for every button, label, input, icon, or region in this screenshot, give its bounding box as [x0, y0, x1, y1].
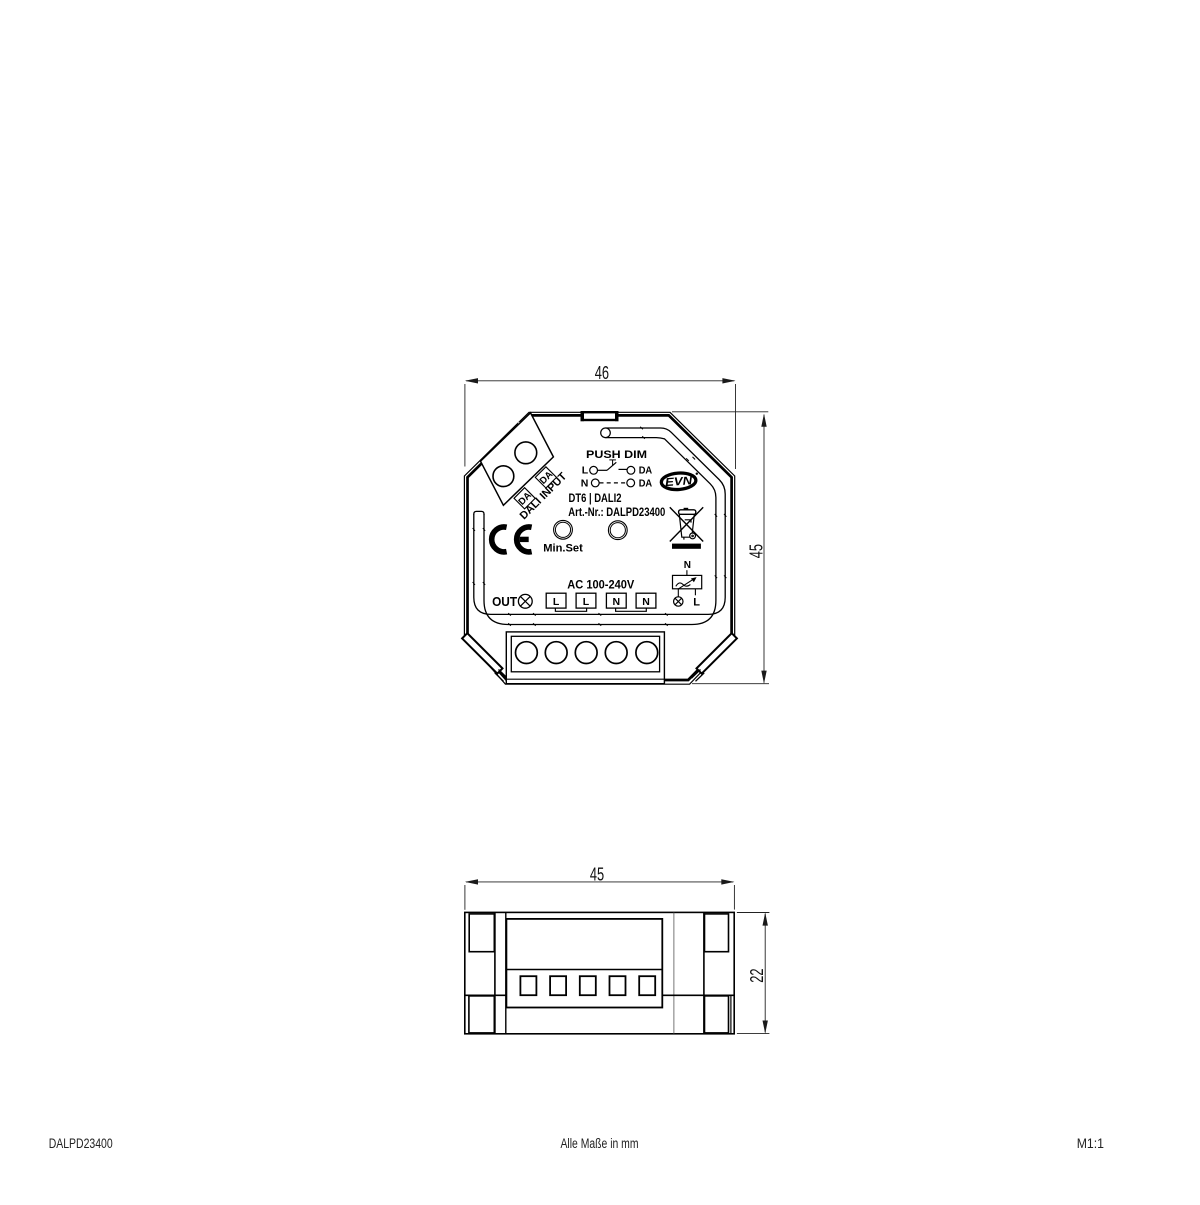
svg-text:45: 45 [746, 544, 766, 558]
svg-text:46: 46 [595, 363, 609, 383]
svg-text:OUT: OUT [492, 594, 517, 609]
svg-text:Min.Set: Min.Set [543, 542, 583, 554]
svg-text:22: 22 [747, 968, 767, 982]
svg-text:M1:1: M1:1 [1077, 1136, 1104, 1151]
svg-text:L: L [693, 596, 700, 608]
svg-text:L: L [553, 596, 560, 608]
svg-text:EVN: EVN [665, 475, 694, 489]
svg-text:L: L [583, 596, 590, 608]
svg-text:N: N [581, 478, 589, 490]
svg-text:DT6 | DALI2: DT6 | DALI2 [569, 491, 622, 505]
svg-text:AC 100-240V: AC 100-240V [567, 579, 634, 591]
svg-text:N: N [684, 560, 691, 571]
svg-text:L: L [582, 465, 589, 477]
svg-text:45: 45 [590, 864, 604, 884]
svg-text:PUSH DIM: PUSH DIM [586, 449, 647, 461]
svg-text:Alle Maße in mm: Alle Maße in mm [561, 1136, 639, 1151]
svg-text:DA: DA [639, 465, 653, 477]
svg-text:N: N [613, 596, 621, 608]
svg-text:DALPD23400: DALPD23400 [49, 1136, 113, 1151]
svg-text:DA: DA [639, 478, 653, 490]
svg-text:Art.-Nr.: DALPD23400: Art.-Nr.: DALPD23400 [568, 505, 665, 519]
svg-text:N: N [642, 596, 650, 608]
